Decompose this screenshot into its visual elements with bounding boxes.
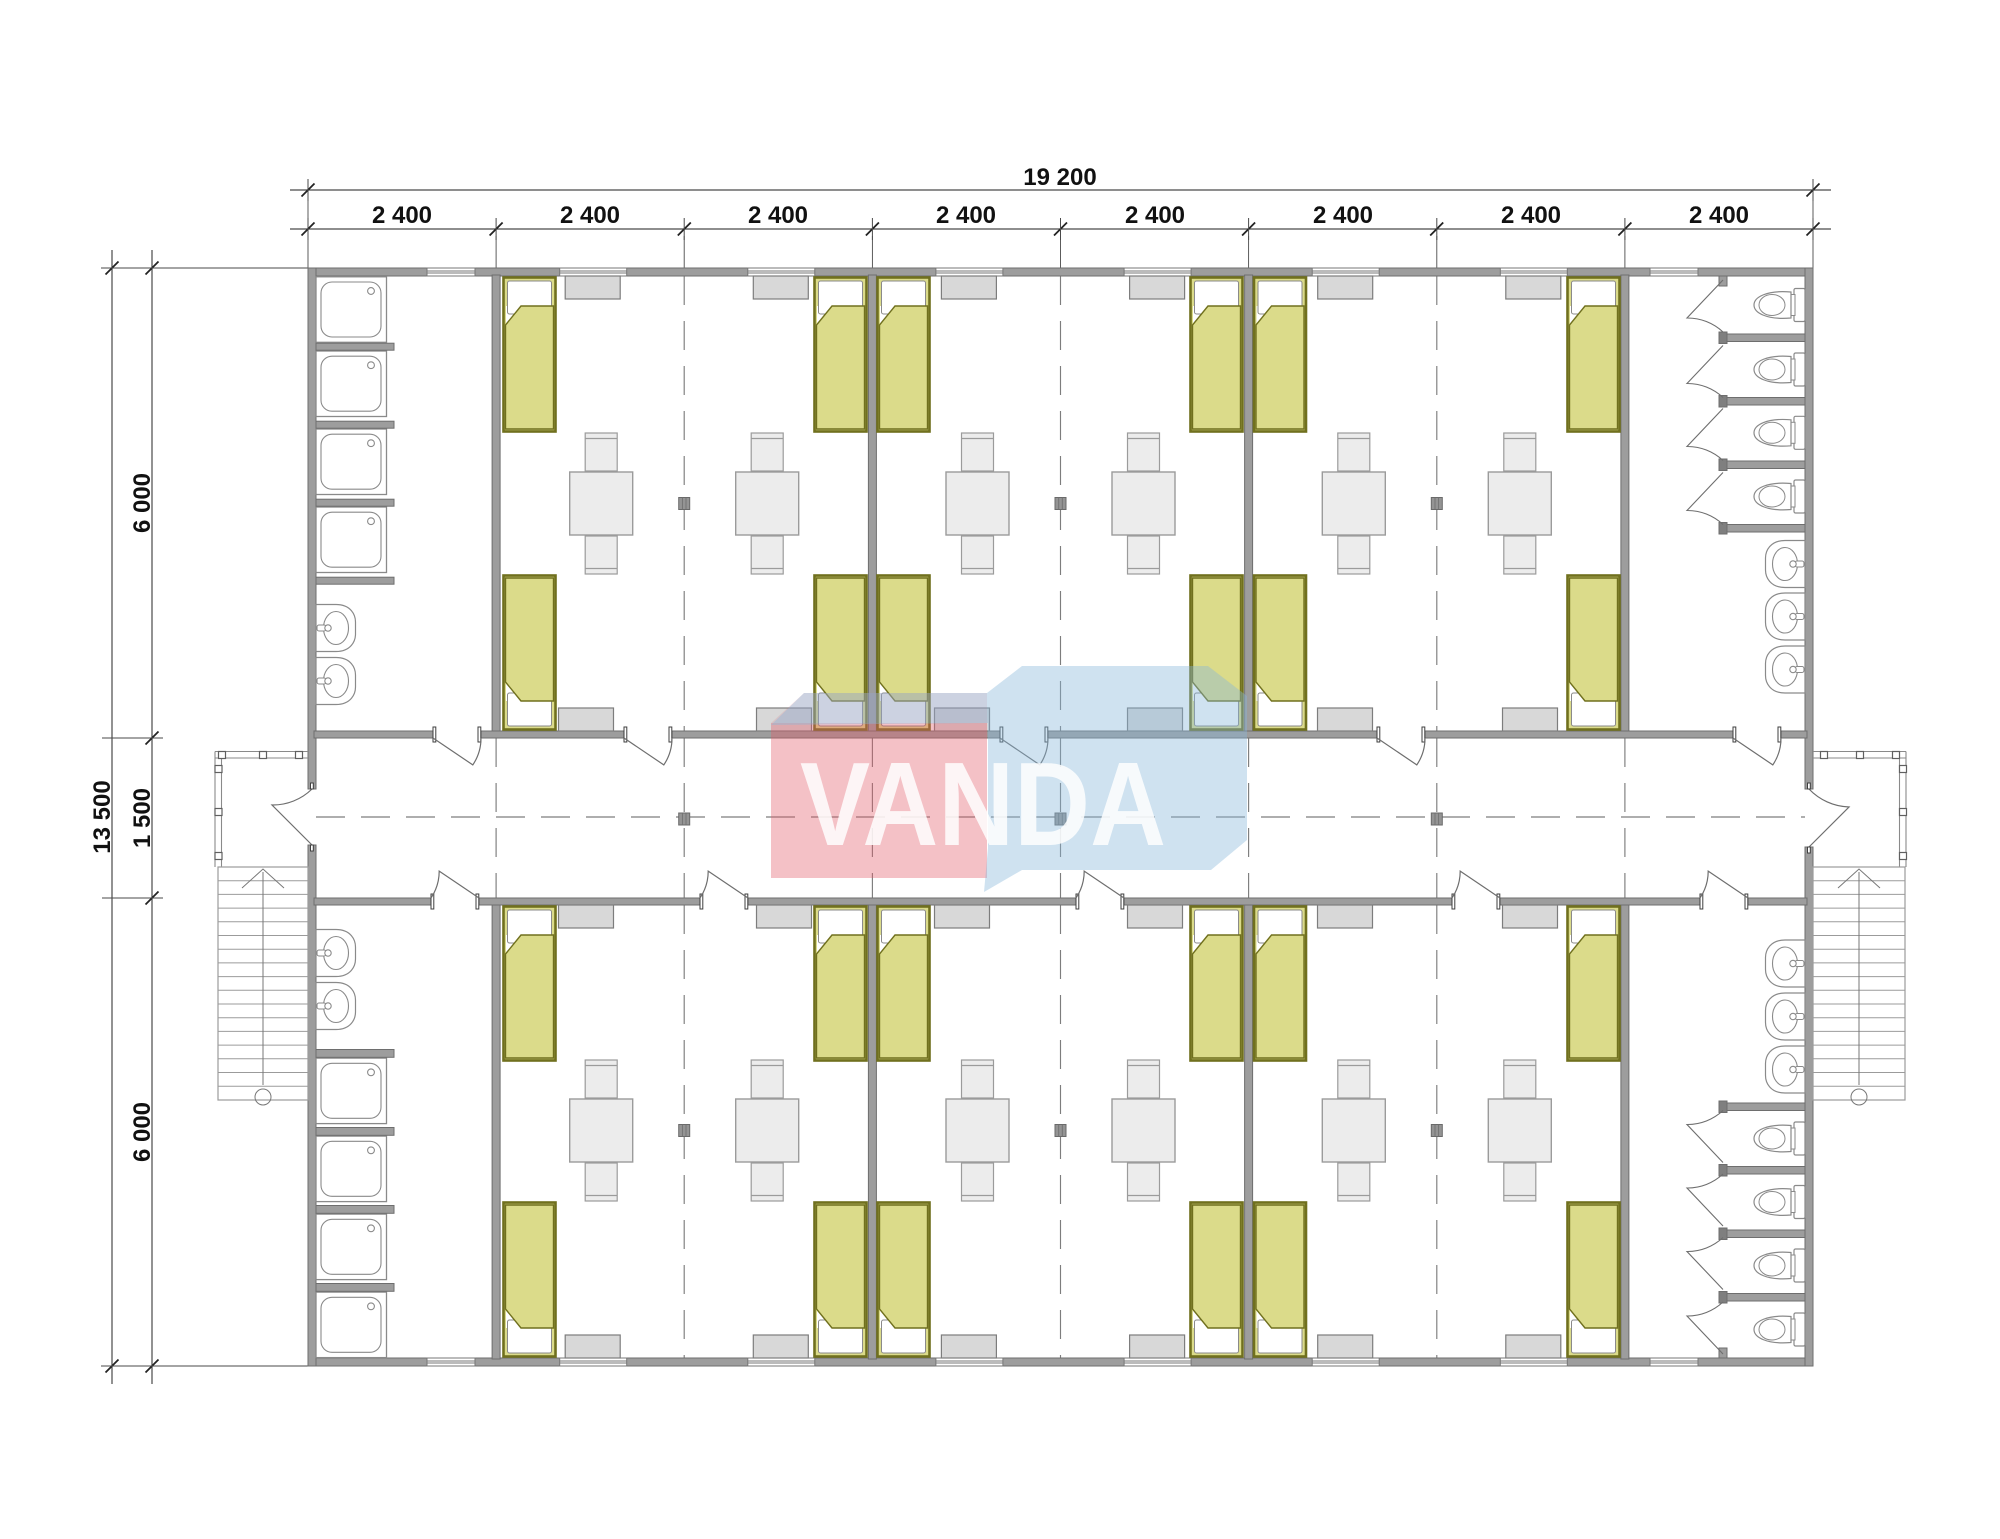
svg-text:6 000: 6 000 <box>129 473 156 533</box>
svg-text:13 500: 13 500 <box>89 780 116 853</box>
svg-text:2 400: 2 400 <box>1125 202 1185 229</box>
svg-text:2 400: 2 400 <box>936 202 996 229</box>
svg-text:2 400: 2 400 <box>748 202 808 229</box>
svg-text:2 400: 2 400 <box>1313 202 1373 229</box>
svg-text:VANDA: VANDA <box>800 738 1166 871</box>
svg-text:6 000: 6 000 <box>129 1102 156 1162</box>
svg-text:19 200: 19 200 <box>1023 164 1096 191</box>
svg-text:2 400: 2 400 <box>560 202 620 229</box>
svg-text:2 400: 2 400 <box>1501 202 1561 229</box>
svg-text:2 400: 2 400 <box>372 202 432 229</box>
svg-text:1 500: 1 500 <box>129 788 156 848</box>
svg-text:2 400: 2 400 <box>1689 202 1749 229</box>
